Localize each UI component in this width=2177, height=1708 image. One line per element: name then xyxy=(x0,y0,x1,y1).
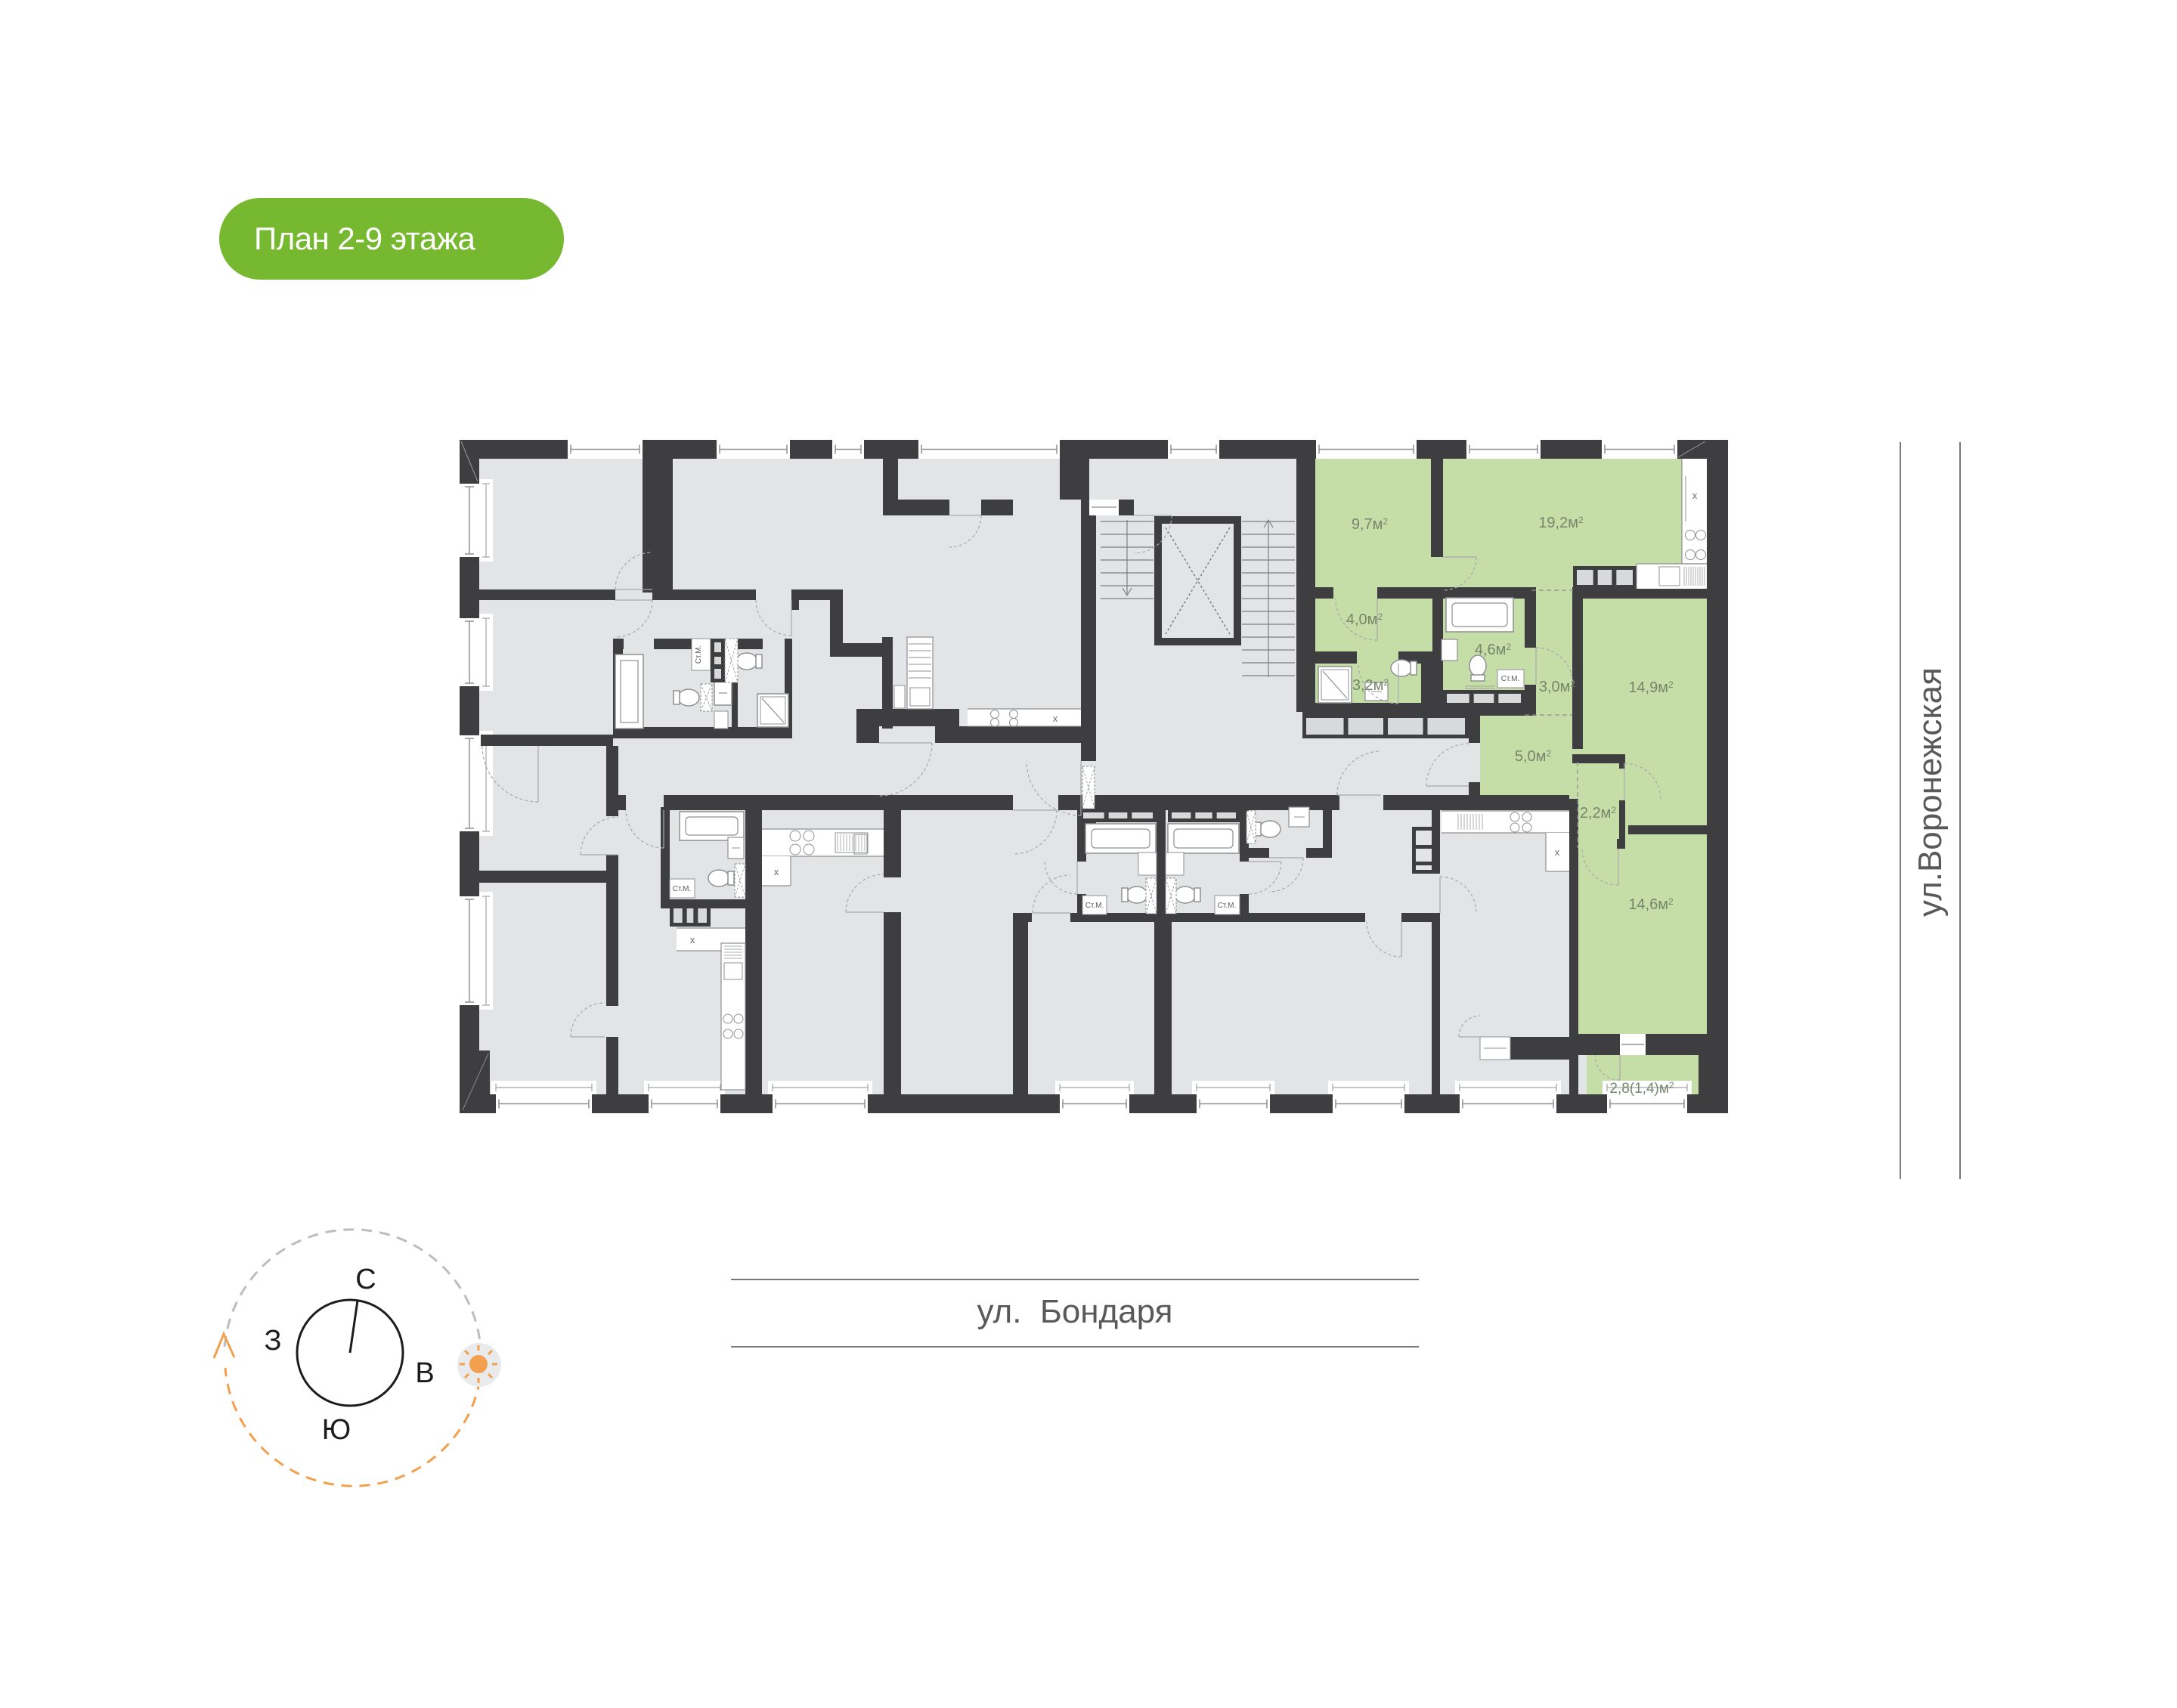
svg-text:С: С xyxy=(355,1264,376,1295)
svg-text:ул.Воронежская: ул.Воронежская xyxy=(1912,667,1949,917)
svg-text:ул. Бондаря: ул. Бондаря xyxy=(977,1293,1173,1330)
svg-text:З: З xyxy=(265,1325,282,1357)
svg-text:В: В xyxy=(415,1357,434,1389)
svg-text:Ю: Ю xyxy=(322,1414,351,1446)
